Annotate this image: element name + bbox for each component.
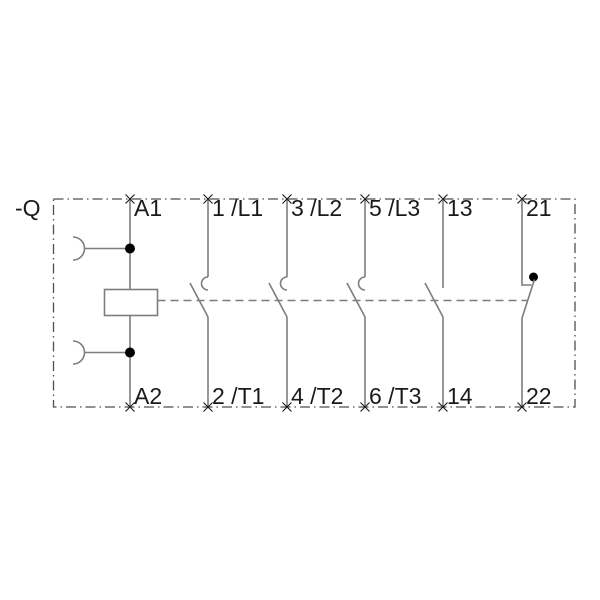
aux-no-contact [425, 199, 443, 407]
main-pole-1 [190, 199, 208, 407]
terminal-label-2t1: 2 /T1 [212, 385, 264, 408]
junction-dot-bottom [125, 348, 135, 358]
aux-nc-contact [522, 199, 538, 407]
moving-contact-slant [347, 283, 365, 317]
terminal-label-14: 14 [447, 385, 473, 408]
terminal-label-a1: A1 [134, 197, 162, 220]
terminal-label-a2: A2 [134, 385, 162, 408]
terminal-label-6t3: 6 /T3 [369, 385, 421, 408]
coil-symbol [105, 290, 158, 316]
main-contact-arc [281, 277, 288, 290]
terminal-label-4t2: 4 /T2 [291, 385, 343, 408]
enclosure-border [54, 199, 576, 407]
junction-dot-top [125, 244, 135, 254]
moving-contact-slant [190, 283, 208, 317]
main-pole-3 [347, 199, 365, 407]
coil-branch [73, 199, 158, 407]
coil-connector-arc-top [73, 237, 85, 260]
main-pole-2 [269, 199, 287, 407]
schematic-diagram: -Q A1 1 /L1 3 /L2 5 /L3 13 21 A2 2 /T1 4… [0, 0, 600, 600]
terminal-label-5l3: 5 /L3 [369, 197, 420, 220]
terminal-label-3l2: 3 /L2 [291, 197, 342, 220]
device-designation-label: -Q [15, 197, 41, 220]
terminal-label-21: 21 [526, 197, 552, 220]
schematic-canvas [0, 0, 600, 600]
moving-contact-slant [269, 283, 287, 317]
terminal-crossing-marks [126, 195, 527, 412]
main-contact-arc [359, 277, 366, 290]
main-contact-arc [202, 277, 209, 290]
coil-connector-arc-bottom [73, 341, 85, 364]
terminal-label-13: 13 [447, 197, 473, 220]
moving-contact-slant [425, 283, 443, 317]
terminal-label-1l1: 1 /L1 [212, 197, 263, 220]
terminal-label-22: 22 [526, 385, 552, 408]
